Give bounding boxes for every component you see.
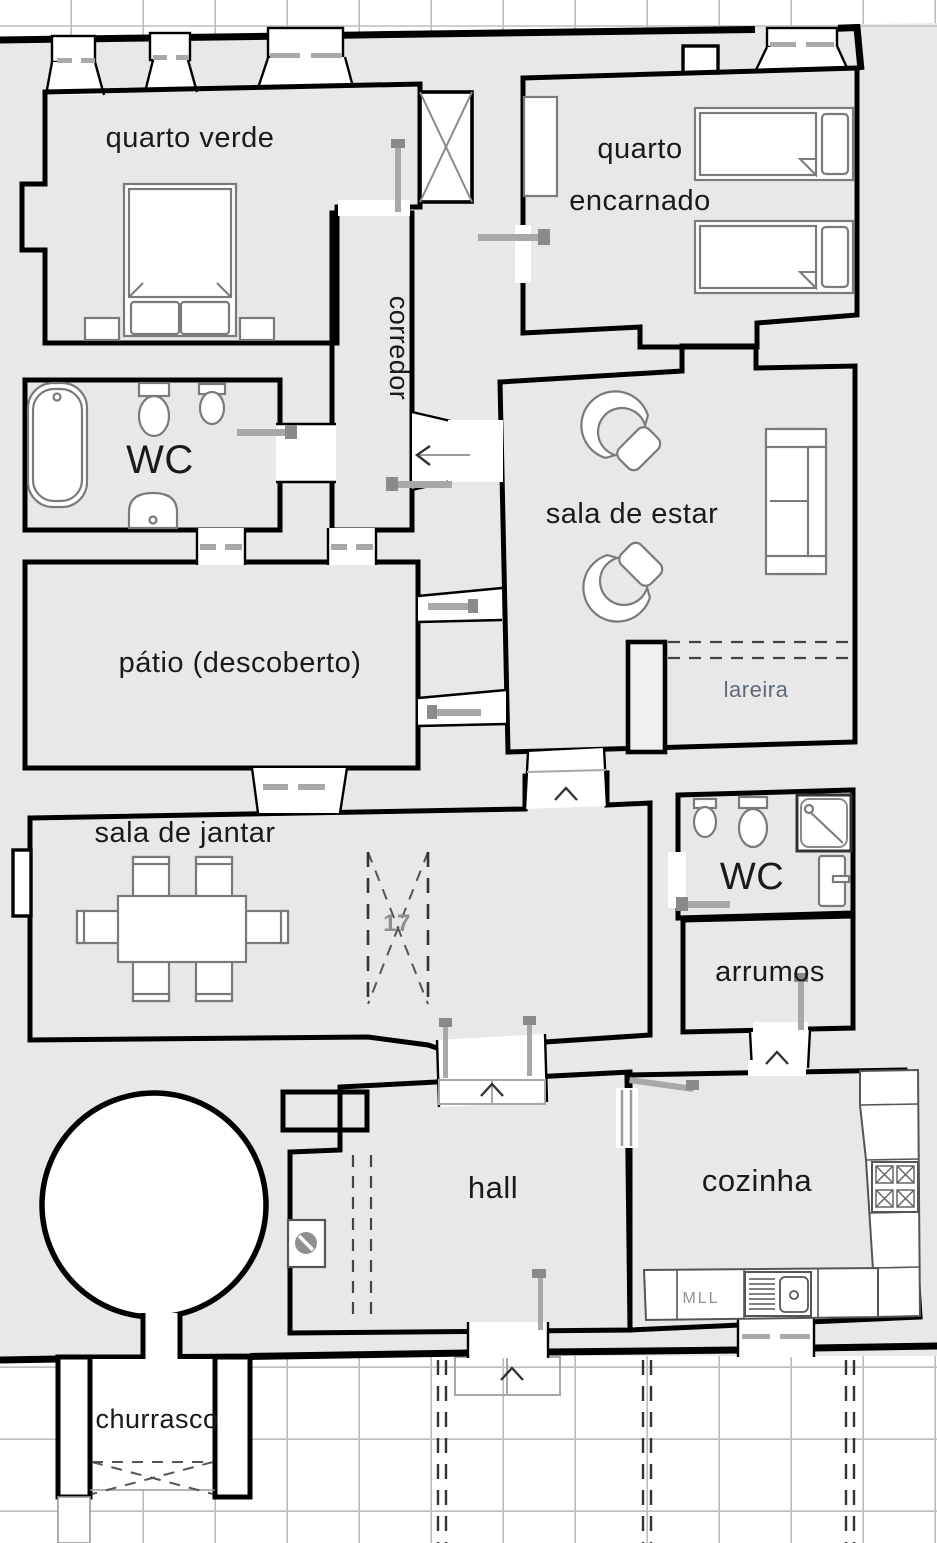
- bidet-icon: [199, 384, 225, 424]
- closet-icon: [420, 92, 472, 202]
- room-label-churrasco: churrasco: [95, 1404, 218, 1434]
- stove-icon: [872, 1162, 918, 1212]
- chimney-mass: [628, 642, 665, 752]
- room-label-quarto-encarnado-2: encarnado: [569, 185, 711, 217]
- round-tank: [42, 1093, 266, 1317]
- room-label-quarto-verde: quarto verde: [106, 122, 275, 154]
- room-label-corredor: corredor: [384, 296, 414, 401]
- room-label-sala-de-estar: sala de estar: [546, 498, 719, 530]
- room-label-arrumos: arrumos: [715, 956, 825, 988]
- floor-plan-drawing: quarto verde quarto encarnado corredor W…: [0, 0, 937, 1543]
- fireplace-label: lareira: [724, 677, 789, 702]
- room-label-wc-top: WC: [126, 438, 194, 482]
- tank-neck: [143, 1313, 180, 1359]
- wall-niche: [683, 46, 718, 73]
- toilet-icon: [739, 797, 767, 847]
- passage-number-label: 17: [383, 910, 411, 937]
- window-recess: [13, 850, 31, 916]
- room-label-patio: pátio (descoberto): [119, 647, 362, 679]
- room-label-cozinha: cozinha: [702, 1163, 813, 1198]
- bathtub-icon: [28, 383, 87, 507]
- toilet-icon: [139, 383, 169, 436]
- door-leaf-icon: [819, 856, 849, 906]
- room-label-sala-de-jantar: sala de jantar: [94, 817, 275, 849]
- wardrobe-icon: [524, 97, 557, 196]
- appliance-label-mll: MLL: [682, 1290, 719, 1307]
- water-heater-icon: [288, 1220, 325, 1267]
- bidet-icon: [694, 799, 716, 837]
- room-label-quarto-encarnado-1: quarto: [597, 133, 682, 165]
- single-bed-icon: [695, 108, 853, 180]
- floor-plan-page: quarto verde quarto encarnado corredor W…: [0, 0, 937, 1543]
- shower-icon: [797, 795, 851, 851]
- washbasin-icon: [129, 493, 177, 528]
- room-label-hall: hall: [468, 1170, 518, 1205]
- room-label-wc-right: WC: [720, 856, 784, 898]
- single-bed-icon: [695, 221, 853, 293]
- sofa-icon: [766, 429, 826, 574]
- kitchen-sink-icon: [745, 1272, 811, 1316]
